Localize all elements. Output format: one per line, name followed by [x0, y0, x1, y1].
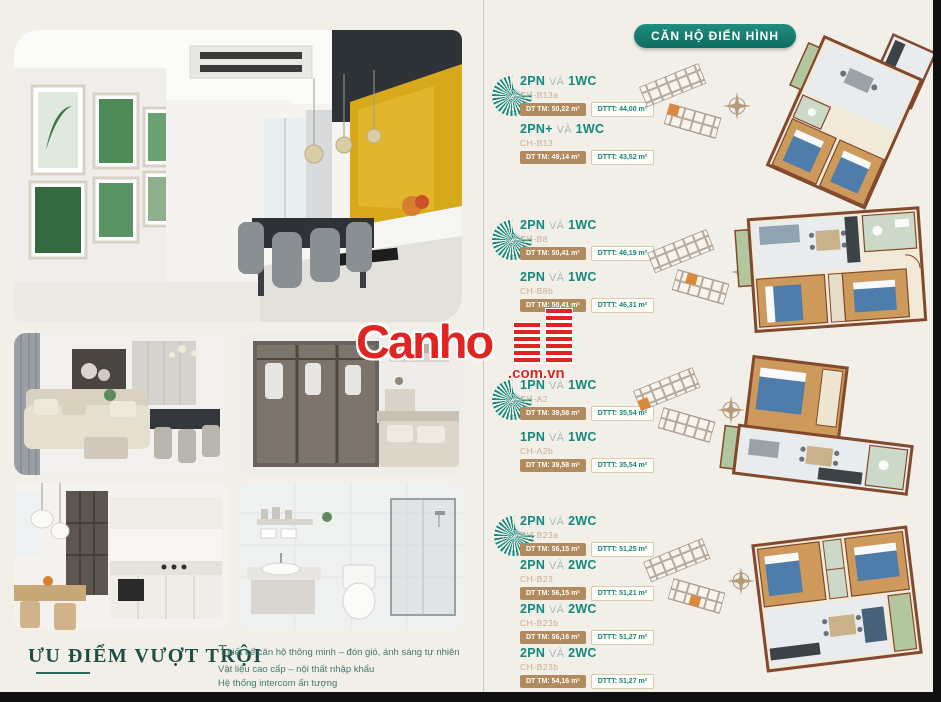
unit-code: CH-B8b — [520, 286, 654, 296]
floorplan-2pn-1wc-b8 — [730, 200, 935, 340]
brochure-page: Canho .com.vn ƯU ĐIỂM VƯỢT TRỘI Thiết kế… — [0, 0, 941, 702]
photo-kitchen-dining-2 — [14, 483, 227, 630]
unit-type-label: 2PN VÀ 2WC — [520, 602, 654, 617]
brand-text: Canho — [356, 314, 492, 369]
floorplan-1pn-1wc — [716, 360, 938, 492]
page-edge-right — [933, 0, 941, 702]
building-column — [545, 308, 573, 364]
page-edge-bottom — [0, 692, 941, 702]
area-net-badge: DTTT: 51,27 m² — [591, 674, 654, 689]
unit-item: 2PN VÀ 1WC CH-B13a DT TM: 50,22 m² DTTT:… — [520, 74, 654, 117]
unit-group-2: 2PN VÀ 1WC CH-B8 DT TM: 50,41 m² DTTT: 4… — [520, 218, 654, 313]
features-underline — [36, 672, 90, 674]
unit-code: CH-B23 — [520, 574, 654, 584]
area-gross-badge: DT TM: 56,15 m² — [520, 543, 586, 556]
unit-item: 2PN VÀ 1WC CH-B8b DT TM: 50,41 m² DTTT: … — [520, 270, 654, 313]
unit-type-label: 2PN VÀ 2WC — [520, 558, 654, 573]
unit-item: 2PN VÀ 2WC CH-B23b DT TM: 54,16 m² DTTT:… — [520, 646, 654, 689]
photo-main-kitchen-dining — [14, 30, 462, 322]
feature-line: Thiết kế căn hộ thông minh – đón gió, án… — [218, 640, 478, 663]
unit-item: 2PN+ VÀ 1WC CH-B13 DT TM: 49,14 m² DTTT:… — [520, 122, 654, 165]
unit-code: CH-B13a — [520, 90, 654, 100]
brand-suffix: .com.vn — [508, 365, 565, 382]
area-gross-badge: DT TM: 56,16 m² — [520, 631, 586, 644]
unit-code: CH-B23b — [520, 662, 654, 672]
floorplan-2pn-2wc — [738, 520, 936, 678]
toilet — [343, 565, 375, 619]
building-bars-icon — [513, 310, 573, 364]
area-gross-badge: DT TM: 50,41 m² — [520, 247, 586, 260]
area-net-badge: DTTT: 46,19 m² — [591, 246, 654, 261]
area-net-badge: DTTT: 43,52 m² — [591, 150, 654, 165]
unit-type-label: 2PN VÀ 1WC — [520, 74, 654, 89]
feature-line: Hệ thống intercom ấn tượng — [218, 677, 478, 691]
unit-type-label: 2PN VÀ 1WC — [520, 270, 654, 285]
unit-item: 2PN VÀ 2WC CH-B23 DT TM: 56,15 m² DTTT: … — [520, 558, 654, 601]
floorplan-2pn-1wc — [754, 36, 934, 206]
feature-line: Vật liệu cao cấp – nội thất nhập khẩu — [218, 663, 478, 677]
photo-bathroom — [239, 483, 462, 630]
area-net-badge: DTTT: 51,27 m² — [591, 630, 654, 645]
unit-group-4: 2PN VÀ 2WC CH-B23a DT TM: 56,15 m² DTTT:… — [520, 514, 654, 689]
compass-rose-icon — [723, 92, 751, 120]
photo-living-room — [14, 333, 227, 475]
area-gross-badge: DT TM: 50,22 m² — [520, 103, 586, 116]
area-gross-badge: DT TM: 54,16 m² — [520, 675, 586, 688]
living-room-illustration — [14, 333, 227, 475]
unit-item: 2PN VÀ 1WC CH-B8 DT TM: 50,41 m² DTTT: 4… — [520, 218, 654, 261]
area-gross-badge: DT TM: 39,58 m² — [520, 407, 586, 420]
unit-type-label: 2PN+ VÀ 1WC — [520, 122, 654, 137]
unit-type-label: 2PN VÀ 2WC — [520, 646, 654, 661]
unit-code: CH-B8 — [520, 234, 654, 244]
kitchen-illustration — [14, 483, 227, 630]
kitchen-dining-illustration — [14, 30, 462, 322]
building-column — [513, 322, 541, 364]
unit-type-label: 2PN VÀ 2WC — [520, 514, 654, 529]
unit-item: 2PN VÀ 2WC CH-B23b DT TM: 56,16 m² DTTT:… — [520, 602, 654, 645]
unit-group-1: 2PN VÀ 1WC CH-B13a DT TM: 50,22 m² DTTT:… — [520, 74, 654, 165]
keyplan-diagram — [640, 70, 755, 150]
unit-code: CH-B23a — [520, 530, 654, 540]
unit-item: 2PN VÀ 2WC CH-B23a DT TM: 56,15 m² DTTT:… — [520, 514, 654, 557]
area-gross-badge: DT TM: 49,14 m² — [520, 151, 586, 164]
bathroom-illustration — [239, 483, 462, 630]
unit-code: CH-B13 — [520, 138, 654, 148]
unit-code: CH-B23b — [520, 618, 654, 628]
area-net-badge: DTTT: 46,31 m² — [591, 298, 654, 313]
unit-type-label: 2PN VÀ 1WC — [520, 218, 654, 233]
watermark-logo: Canho .com.vn — [356, 318, 591, 394]
area-net-badge: DTTT: 35,54 m² — [591, 458, 654, 473]
area-gross-badge: DT TM: 39,58 m² — [520, 459, 586, 472]
area-gross-badge: DT TM: 56,15 m² — [520, 587, 586, 600]
